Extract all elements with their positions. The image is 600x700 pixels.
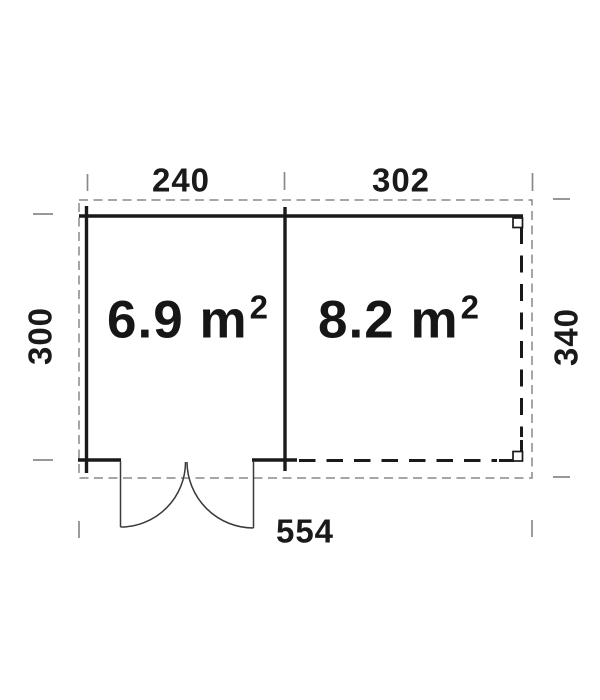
room-area-right: 8.2 m2 [318,294,480,347]
room-area-left-value: 6.9 m [107,291,248,350]
dimension-label-554: 554 [276,515,334,548]
room-area-right-exponent: 2 [461,291,480,324]
corner-post-top-right [513,218,523,228]
dimension-label-300: 300 [24,307,57,365]
dimension-label-302: 302 [372,164,430,197]
door-swing-arc-right [187,462,254,528]
floor-plan-drawing [0,0,600,700]
dimension-label-240: 240 [152,164,210,197]
floor-plan: 240 302 300 340 554 6.9 m2 8.2 m2 [0,0,600,700]
double-door [121,461,254,528]
dimension-ticks [33,172,570,538]
dimension-label-340: 340 [550,308,583,366]
room-area-left: 6.9 m2 [107,294,269,347]
corner-post-bottom-right [513,452,523,462]
room-area-right-value: 8.2 m [318,291,459,350]
room-area-left-exponent: 2 [250,291,269,324]
door-swing-arc-left [121,462,186,527]
